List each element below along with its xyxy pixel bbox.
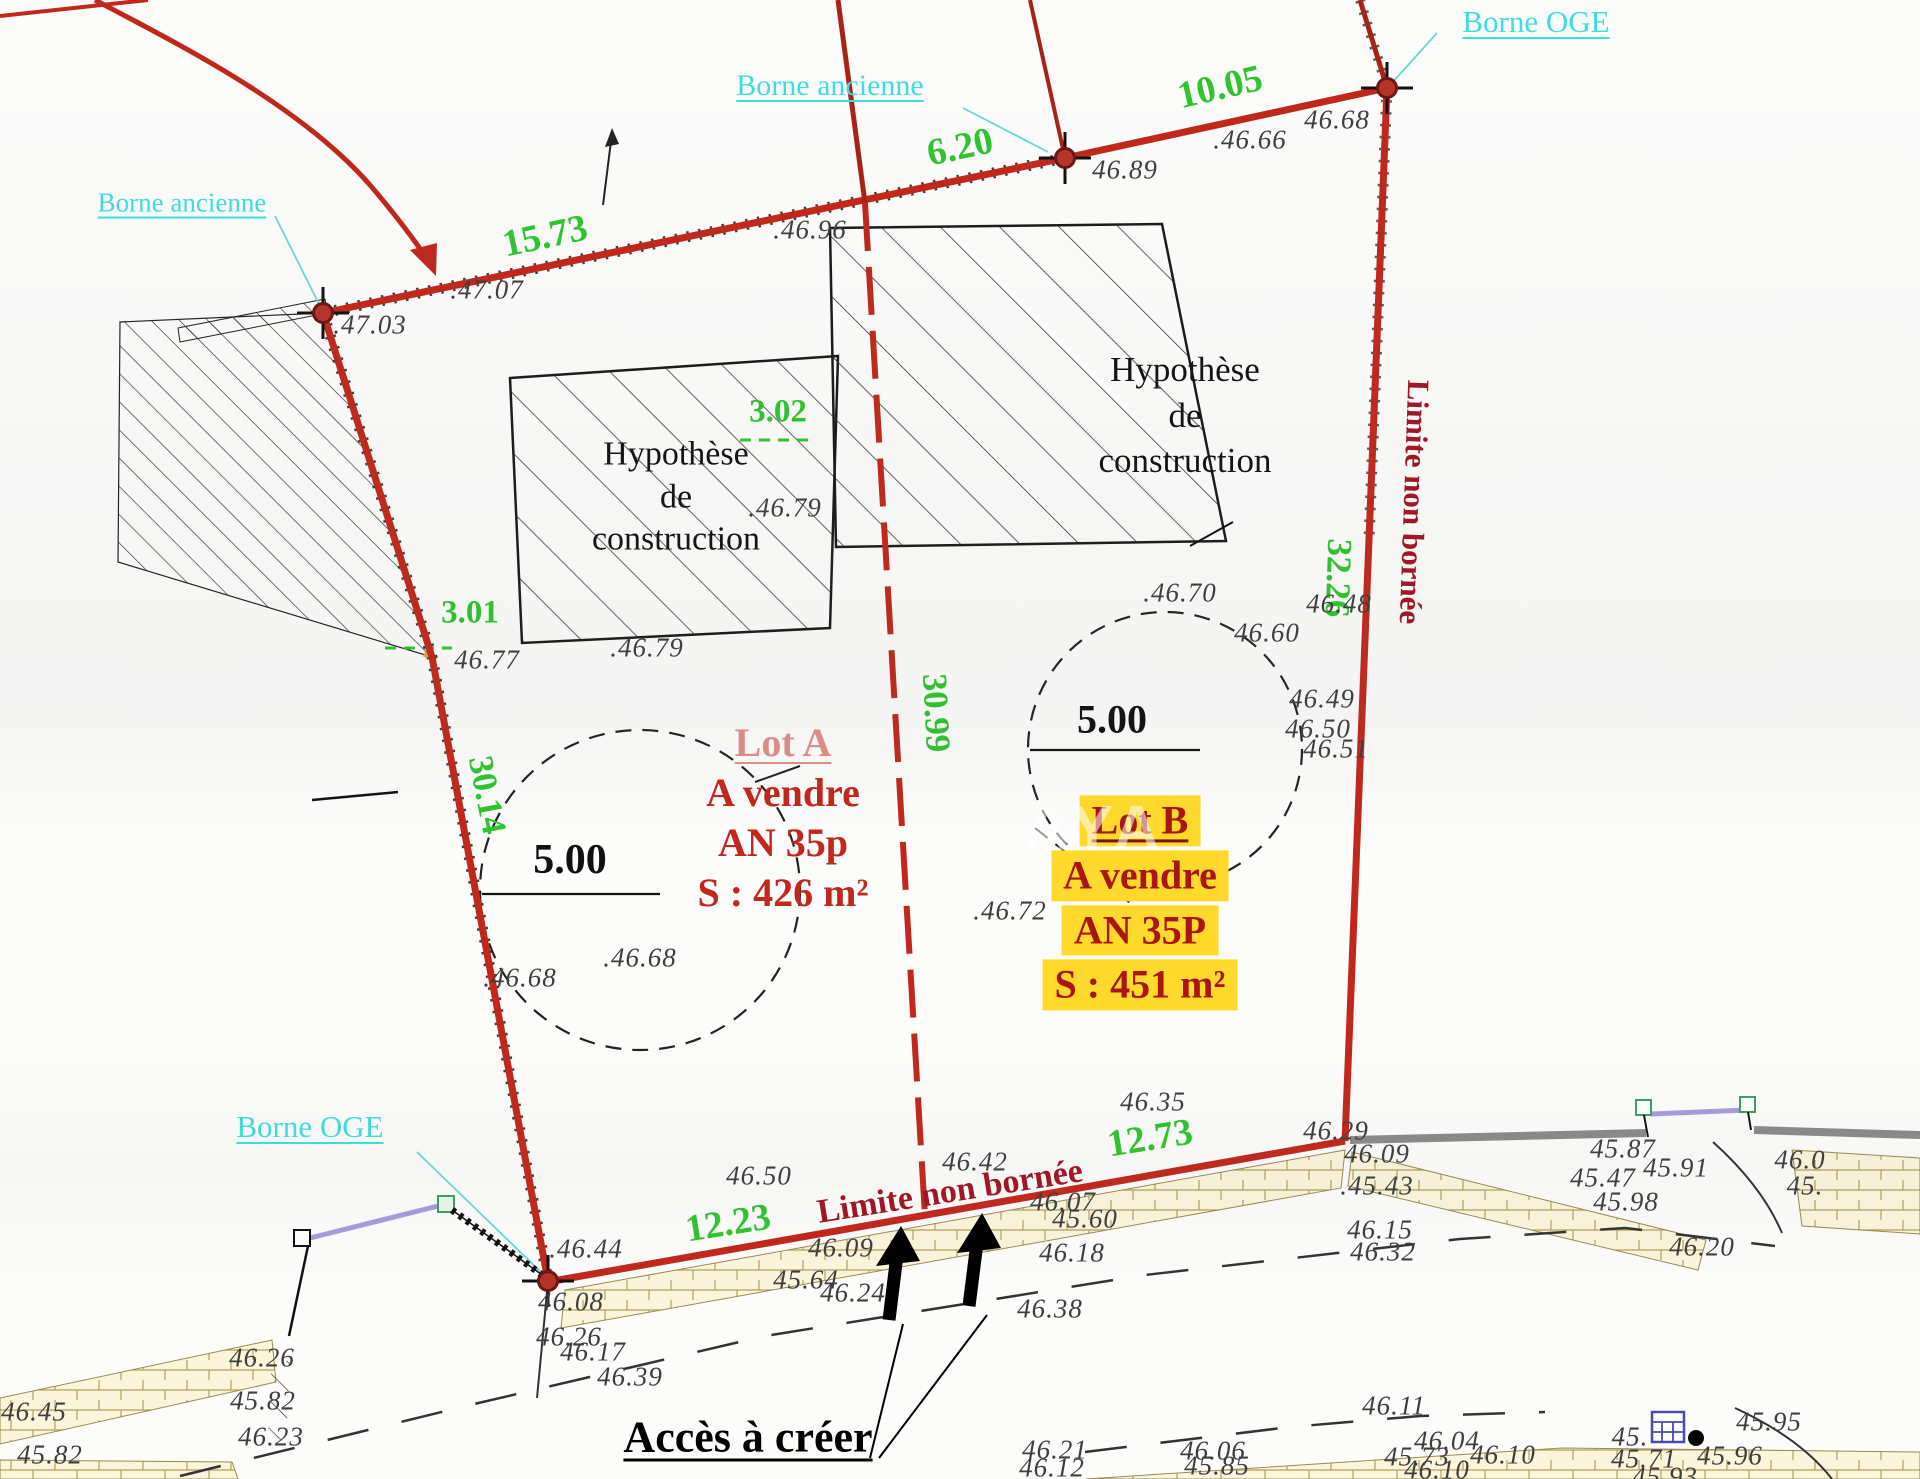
elevation-label: 45.98 — [1593, 1187, 1659, 1218]
construction-line: construction — [592, 518, 760, 561]
borne-label: Borne OGE — [236, 1109, 383, 1145]
elevation-label: .46.44 — [549, 1234, 623, 1265]
borne-label: Borne OGE — [1462, 4, 1609, 40]
dimension-label: 3.01 — [441, 595, 499, 632]
dimension-label: 30.99 — [914, 673, 958, 754]
labels-layer: Borne ancienneBorne ancienneBorne OGEBor… — [0, 0, 1920, 1479]
elevation-label: 45.95 — [1736, 1407, 1802, 1438]
elevation-label: 46.10 — [1404, 1455, 1470, 1479]
elevation-label: 46.12 — [1019, 1453, 1085, 1479]
construction-line: de — [660, 476, 692, 519]
dimension-label: 6.20 — [923, 119, 997, 176]
elevation-label: 46.89 — [1092, 155, 1158, 186]
dimension-label: 12.23 — [682, 1195, 773, 1252]
elevation-label: 45.60 — [1052, 1204, 1118, 1235]
dimension-label: 15.73 — [499, 206, 592, 267]
dimension-label: 3.02 — [749, 394, 807, 431]
elevation-label: 46.08 — [538, 1287, 604, 1318]
construction-label-lot-b: Hypothèse de construction — [1098, 347, 1271, 484]
elevation-label: .46.96 — [773, 215, 847, 246]
elevation-label: 45.82 — [17, 1440, 83, 1471]
elevation-label: 45. — [1787, 1171, 1824, 1202]
elevation-label: .46.70 — [1143, 578, 1217, 609]
elevation-label: .45.43 — [1340, 1171, 1414, 1202]
radius-label: 5.00 — [533, 836, 607, 884]
elevation-label: 46.38 — [1017, 1294, 1083, 1325]
elevation-label: .46.66 — [1213, 125, 1287, 156]
elevation-label: 46.35 — [1120, 1087, 1186, 1118]
dimension-label: 10.05 — [1173, 56, 1266, 118]
elevation-label: 45.93 — [1632, 1462, 1698, 1479]
elevation-label: 46.68 — [1304, 105, 1370, 136]
elevation-label: 45.85 — [1184, 1451, 1250, 1479]
elevation-label: 45.91 — [1643, 1153, 1709, 1184]
borne-label: Borne ancienne — [98, 188, 267, 219]
elevation-label: 46.09 — [1344, 1139, 1410, 1170]
elevation-label: 46.11 — [1362, 1391, 1426, 1422]
survey-plan-canvas: Borne ancienneBorne ancienneBorne OGEBor… — [0, 0, 1920, 1479]
elevation-label: 46.20 — [1669, 1232, 1735, 1263]
acces-a-creer-label: Accès à créer — [623, 1412, 872, 1463]
lot-a-name: Lot A — [735, 718, 832, 768]
construction-line: de — [1168, 392, 1201, 438]
elevation-label: 45. — [1612, 1422, 1649, 1453]
elevation-label: .47.03 — [333, 310, 407, 341]
lot-b-line: S : 451 m² — [1043, 960, 1238, 1011]
elevation-label: 46.51 — [1303, 734, 1369, 765]
elevation-label: 46.24 — [820, 1278, 886, 1309]
lot-a-line: S : 426 m² — [698, 868, 869, 918]
watermark: AYA — [1024, 791, 1165, 865]
elevation-label: 46.45 — [1, 1397, 67, 1428]
elevation-label: .46.68 — [603, 943, 677, 974]
elevation-label: .46.72 — [973, 896, 1047, 927]
lot-a-line: A vendre — [706, 768, 860, 818]
elevation-label: 46.23 — [238, 1422, 304, 1453]
dimension-label: 12.73 — [1104, 1110, 1195, 1167]
construction-line: Hypothèse — [1110, 347, 1260, 393]
elevation-label: 45.82 — [230, 1386, 296, 1417]
elevation-label: 46.50 — [726, 1161, 792, 1192]
elevation-label: 46.39 — [597, 1362, 663, 1393]
borne-label: Borne ancienne — [736, 69, 923, 103]
elevation-label: 46.77 — [454, 645, 520, 676]
elevation-label: 46.32 — [1350, 1237, 1416, 1268]
elevation-label: 46.60 — [1234, 618, 1300, 649]
elevation-label: 46.26 — [229, 1343, 295, 1374]
radius-label: 5.00 — [1077, 696, 1147, 743]
elevation-label: 45.96 — [1697, 1441, 1763, 1472]
dimension-label: 30.14 — [460, 753, 514, 838]
elevation-label: .46.79 — [610, 633, 684, 664]
elevation-label: 46.18 — [1039, 1238, 1105, 1269]
elevation-label: .46.68 — [483, 963, 557, 994]
elevation-label: .47.07 — [450, 275, 524, 306]
elevation-label: 46.48 — [1306, 589, 1372, 620]
elevation-label: 46.49 — [1289, 684, 1355, 715]
elevation-label: 46.10 — [1470, 1440, 1536, 1471]
construction-label-lot-a: Hypothèse de construction — [592, 433, 760, 561]
construction-line: Hypothèse — [603, 433, 748, 476]
lot-a-line: AN 35p — [718, 818, 848, 868]
lot-a-label: Lot A A vendre AN 35p S : 426 m² — [698, 718, 869, 918]
construction-line: construction — [1098, 438, 1271, 484]
elevation-label: 46.09 — [808, 1233, 874, 1264]
lot-b-line: AN 35P — [1062, 905, 1218, 956]
